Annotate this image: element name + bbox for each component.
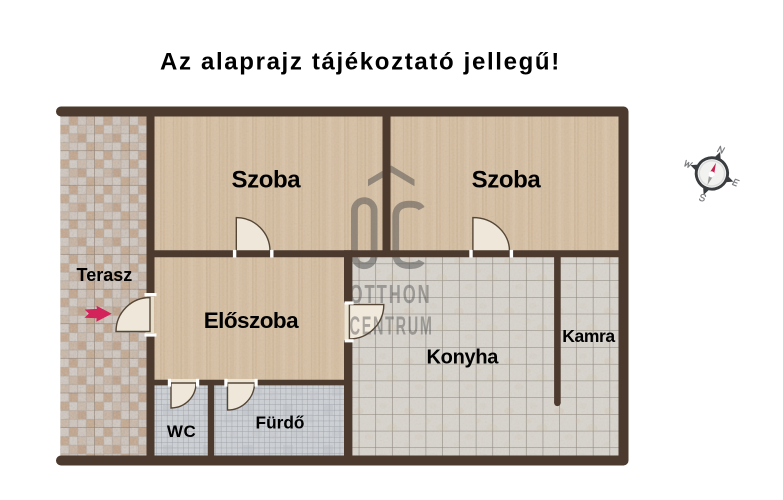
svg-text:WC: WC <box>167 422 196 441</box>
svg-text:Előszoba: Előszoba <box>204 308 299 333</box>
svg-text:Konyha: Konyha <box>427 347 500 369</box>
svg-text:Szoba: Szoba <box>472 166 542 193</box>
svg-text:OTTHON: OTTHON <box>350 279 432 309</box>
svg-text:Kamra: Kamra <box>562 326 615 346</box>
svg-text:CENTRUM: CENTRUM <box>350 311 434 341</box>
svg-text:Terasz: Terasz <box>77 265 133 285</box>
svg-text:Az alaprajz tájékoztató jelleg: Az alaprajz tájékoztató jellegű! <box>160 49 561 76</box>
svg-text:Szoba: Szoba <box>232 167 302 194</box>
svg-text:Fürdő: Fürdő <box>256 413 305 433</box>
